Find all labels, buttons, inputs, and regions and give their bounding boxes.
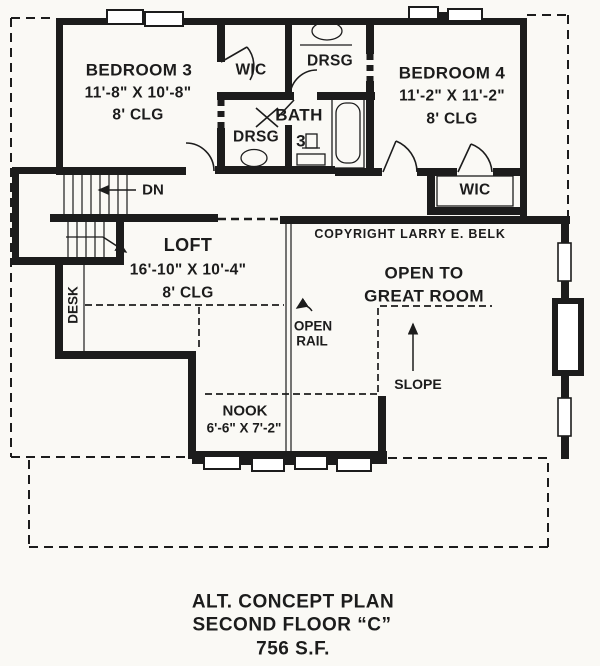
- drsg-upper-label: DRSG: [307, 53, 353, 69]
- loft-ceiling: 8' CLG: [162, 285, 213, 301]
- great-room-line1: OPEN TO: [384, 265, 463, 282]
- open-rail-label-rail: RAIL: [296, 334, 328, 348]
- drsg-upper-door-swing: [290, 70, 317, 95]
- copyright-label: COPYRIGHT LARRY E. BELK: [314, 228, 505, 241]
- bedroom4-door-swing: [383, 141, 417, 172]
- plan-title-line1: ALT. CONCEPT PLAN: [192, 593, 394, 612]
- drsg-lower-sink-icon: [241, 150, 267, 167]
- great-room-line2: GREAT ROOM: [364, 288, 484, 305]
- open-rail-label-open: OPEN: [294, 319, 332, 333]
- drsg-upper-sink-icon: [300, 22, 352, 45]
- bedroom3-ceiling: 8' CLG: [112, 107, 163, 123]
- bedroom3-label: BEDROOM 3: [86, 62, 193, 79]
- nook-dims: 6'-6" X 7'-2": [207, 421, 282, 435]
- loft-label: LOFT: [164, 236, 213, 254]
- bedroom3-dims: 11'-8" X 10'-8": [85, 85, 192, 101]
- bathtub-icon: [332, 98, 364, 168]
- wic-left-label: WIC: [235, 62, 266, 78]
- bath-label: BATH: [275, 107, 323, 124]
- slope-label: SLOPE: [394, 377, 441, 391]
- bedroom4-dims: 11'-2" X 11'-2": [399, 88, 505, 104]
- plan-title-line2: SECOND FLOOR “C”: [192, 616, 391, 635]
- drsg-lower-label: DRSG: [233, 129, 279, 145]
- desk-label: DESK: [66, 286, 80, 324]
- vanity-sink-icon: [297, 154, 325, 165]
- bath-number: 3: [296, 133, 306, 150]
- plan-title-area: 756 S.F.: [256, 640, 330, 659]
- wic-right-door-swing: [458, 144, 492, 172]
- dn-label: DN: [142, 183, 164, 198]
- open-rail-arrow: [297, 306, 312, 311]
- loft-dims: 16'-10" X 10'-4": [130, 262, 247, 278]
- wic-right-label: WIC: [459, 182, 490, 198]
- floor-plan-sheet: BEDROOM 3 11'-8" X 10'-8" 8' CLG WIC DRS…: [0, 0, 600, 666]
- bedroom4-ceiling: 8' CLG: [426, 111, 477, 127]
- bedroom3-door-swing: [186, 143, 214, 171]
- chimney: [552, 298, 584, 376]
- bedroom4-label: BEDROOM 4: [399, 65, 506, 82]
- nook-label: NOOK: [223, 404, 268, 419]
